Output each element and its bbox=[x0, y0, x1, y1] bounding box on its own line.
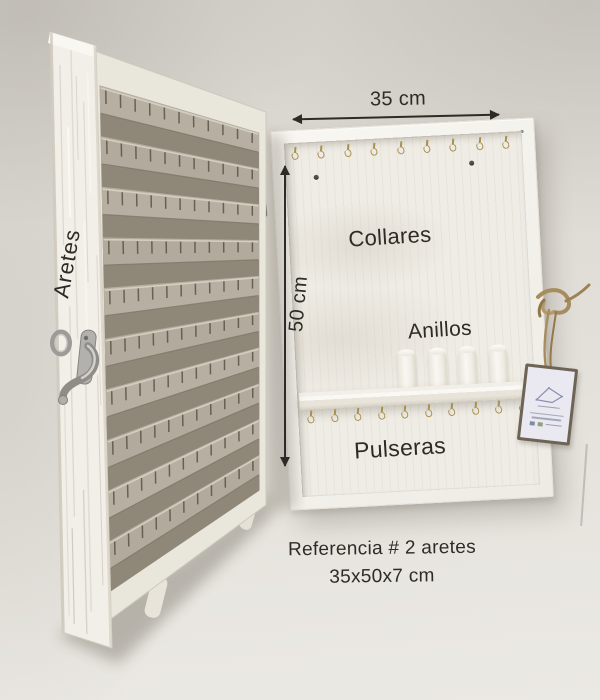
hook-stem bbox=[479, 137, 481, 143]
earring-slat bbox=[101, 136, 259, 188]
width-dimension-label: 35 cm bbox=[370, 88, 426, 112]
slat-highlight bbox=[109, 421, 259, 493]
hook-stem bbox=[333, 409, 335, 415]
hook-stem bbox=[380, 407, 382, 413]
hook-icon bbox=[494, 400, 504, 415]
slat-highlight bbox=[101, 88, 259, 134]
paint-streak bbox=[70, 306, 75, 516]
wall-scratch bbox=[580, 444, 587, 526]
slat-shadow bbox=[101, 113, 258, 152]
paint-streak bbox=[68, 127, 70, 217]
door-edge-board bbox=[48, 32, 112, 648]
slat-shadow bbox=[105, 296, 258, 316]
hook-icon bbox=[290, 147, 300, 162]
earring-slat bbox=[106, 347, 259, 417]
hook-icon bbox=[448, 138, 458, 153]
hook-icon bbox=[329, 409, 339, 424]
height-dimension-label: 50 cm bbox=[285, 275, 313, 333]
caption-size: 35x50x7 cm bbox=[329, 565, 435, 588]
slat-shadow bbox=[106, 331, 258, 366]
slat-highlight bbox=[105, 278, 259, 291]
hook-icon bbox=[470, 402, 480, 417]
slat-highlight bbox=[110, 457, 259, 543]
paint-streak bbox=[84, 221, 88, 371]
tag-logo-row bbox=[529, 421, 561, 429]
paint-streak bbox=[71, 50, 78, 338]
door-feet bbox=[143, 495, 259, 619]
board-edge-shade bbox=[51, 32, 63, 632]
board-edge-highlight bbox=[95, 46, 111, 648]
hook-icon bbox=[501, 136, 511, 151]
tag-sketch bbox=[527, 380, 570, 412]
hook-stem bbox=[399, 141, 401, 147]
screw-icon bbox=[314, 175, 319, 180]
door-frame bbox=[92, 50, 266, 624]
paint-streak bbox=[84, 490, 87, 634]
hook-stem bbox=[474, 402, 476, 408]
door-shadow bbox=[58, 492, 272, 664]
paint-streak bbox=[85, 341, 91, 612]
door-latch-icon bbox=[53, 329, 97, 404]
hook-icon bbox=[422, 140, 432, 155]
hook-icon bbox=[475, 137, 485, 152]
slat-highlight bbox=[103, 189, 259, 206]
earring-slat bbox=[107, 383, 260, 468]
slat-highlight bbox=[102, 138, 259, 169]
cabinet-back-panel: Collares Anillos Pulseras bbox=[284, 131, 540, 497]
hinge-icon bbox=[256, 168, 268, 218]
slat-shadow bbox=[104, 260, 258, 265]
hook-stem bbox=[347, 144, 349, 150]
board-top-cap bbox=[48, 32, 96, 57]
earring-slat bbox=[109, 455, 260, 569]
earring-slat bbox=[108, 419, 260, 519]
hook-icon bbox=[306, 410, 316, 425]
board-face bbox=[50, 32, 112, 648]
paint-streak bbox=[98, 375, 103, 586]
ring-post bbox=[397, 349, 417, 388]
hinges bbox=[255, 168, 268, 472]
jewelry-organizer-photo: { "annotations": { "door_label": "Aretes… bbox=[0, 0, 600, 700]
hook-icon bbox=[423, 404, 433, 419]
hook-icon bbox=[376, 407, 386, 422]
earring-slat bbox=[105, 312, 259, 367]
slat-shadow bbox=[110, 475, 258, 569]
door-label: Aretes bbox=[48, 227, 85, 300]
paint-streak bbox=[64, 394, 69, 616]
paint-streak bbox=[88, 73, 91, 193]
slat-backing bbox=[100, 85, 260, 592]
earring-slat bbox=[104, 276, 260, 316]
slat-highlight bbox=[108, 385, 259, 442]
hook-icon bbox=[353, 408, 363, 423]
earring-slat bbox=[100, 85, 260, 152]
slat-highlight bbox=[107, 349, 259, 391]
slat-shadow bbox=[107, 367, 258, 417]
cabinet-panel: Collares Anillos Pulseras bbox=[270, 117, 554, 510]
earring-slat bbox=[103, 237, 260, 265]
caption-reference: Referencia # 2 aretes bbox=[288, 537, 476, 562]
paint-streak bbox=[76, 76, 78, 160]
rings-label: Anillos bbox=[359, 314, 520, 348]
hook-icon bbox=[400, 405, 410, 420]
ring-post bbox=[428, 347, 448, 386]
screw-icon bbox=[469, 161, 474, 166]
hook-stem bbox=[427, 404, 429, 410]
necklace-hooks-row bbox=[284, 135, 523, 163]
hook-icon bbox=[343, 144, 353, 159]
hook-icon bbox=[447, 403, 457, 418]
ring-post bbox=[458, 346, 478, 385]
slat-shadow bbox=[102, 164, 258, 188]
door-foot bbox=[143, 575, 169, 620]
hook-icon bbox=[316, 145, 326, 160]
earring-slat bbox=[102, 187, 260, 224]
tag-text-line bbox=[545, 424, 561, 427]
hook-icon bbox=[396, 141, 406, 156]
slat-highlight bbox=[106, 313, 259, 340]
door-foot bbox=[239, 495, 260, 531]
slat-shadow bbox=[109, 439, 258, 518]
hang-tag bbox=[517, 363, 578, 446]
slat-shadow bbox=[103, 215, 258, 224]
ring-post bbox=[489, 344, 509, 383]
necklaces-label: Collares bbox=[270, 217, 509, 257]
paint-streak bbox=[84, 102, 88, 282]
tag-mark bbox=[537, 421, 542, 426]
bracelets-label: Pulseras bbox=[309, 429, 490, 467]
paint-streak bbox=[72, 528, 74, 624]
hinge-icon bbox=[255, 422, 267, 472]
hook-icon bbox=[369, 143, 379, 158]
paint-streak bbox=[60, 65, 64, 245]
tag-mark bbox=[529, 421, 534, 426]
paint-streak bbox=[97, 255, 101, 405]
slat-shadow bbox=[108, 403, 258, 467]
door-panel bbox=[92, 50, 266, 624]
width-dimension-arrow bbox=[293, 114, 499, 121]
slat-highlight bbox=[104, 240, 259, 242]
